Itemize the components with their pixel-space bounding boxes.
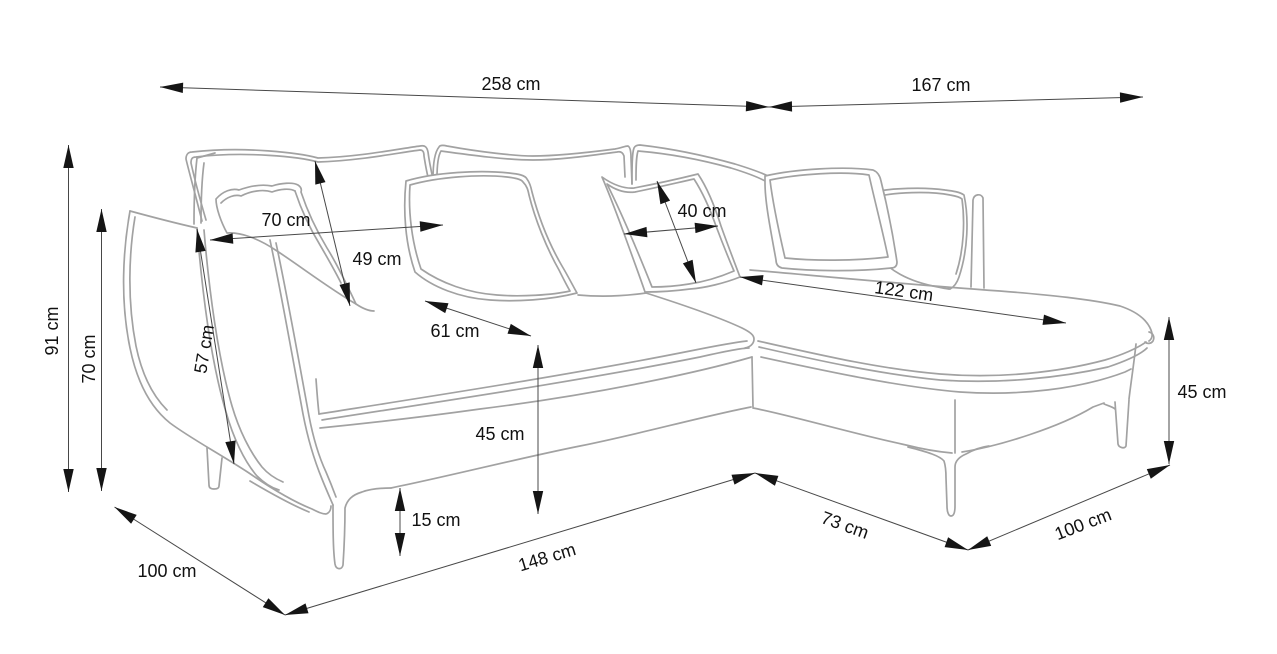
svg-text:49 cm: 49 cm [352,249,401,269]
svg-text:122 cm: 122 cm [873,277,934,305]
svg-text:61 cm: 61 cm [430,321,479,341]
svg-text:40 cm: 40 cm [677,201,726,221]
svg-text:258 cm: 258 cm [481,74,540,94]
svg-text:91 cm: 91 cm [42,306,62,355]
svg-text:100 cm: 100 cm [137,561,196,581]
svg-text:167 cm: 167 cm [911,75,970,95]
svg-text:73 cm: 73 cm [818,507,871,542]
svg-text:15 cm: 15 cm [411,510,460,530]
svg-text:70 cm: 70 cm [261,210,310,230]
svg-text:45 cm: 45 cm [475,424,524,444]
svg-text:57 cm: 57 cm [190,323,218,375]
svg-text:45 cm: 45 cm [1177,382,1226,402]
svg-text:148 cm: 148 cm [516,539,578,575]
svg-text:70 cm: 70 cm [79,334,99,383]
